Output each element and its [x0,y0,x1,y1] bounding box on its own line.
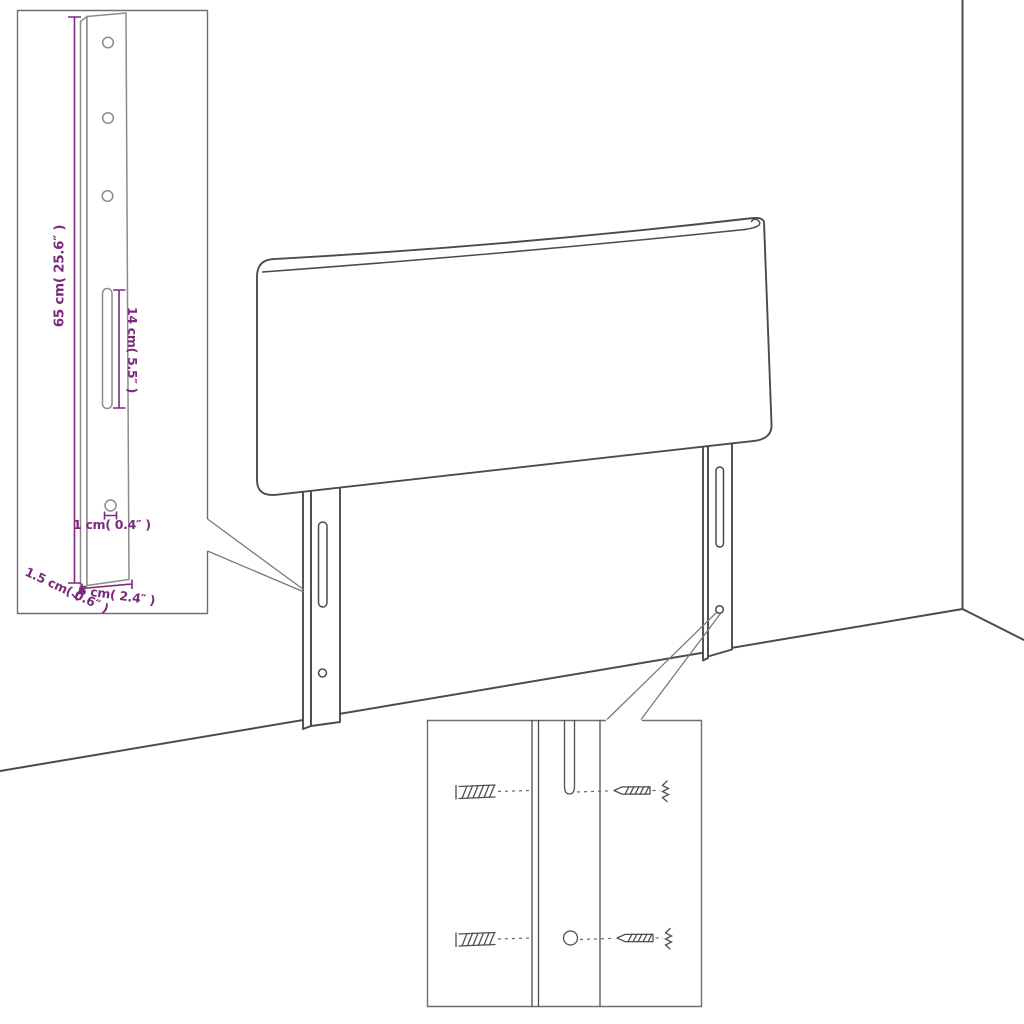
left-leg-front-face [311,478,340,726]
bracket-drawing [81,13,130,593]
headboard-right-leg [703,432,732,661]
leg-strip-slot [565,721,575,795]
dimension-hole-label: 1 cm( 0.4″ ) [73,517,151,532]
leg-strip-hole [564,931,578,945]
screw-break-squiggle [663,781,669,802]
leg-detail-callout-line-lower [208,551,305,592]
leg-detail-inset: 65 cm( 25.6″ ) 14 cm( 5.5″ ) 1 cm( 0.4″ … [18,11,208,616]
hardware-callout-line-right [641,614,721,720]
screw-leader-dashes [580,938,615,939]
screw-break-squiggle [666,929,672,950]
wall-plug-leader-dashes [498,938,530,939]
leg-strip-detail [532,721,600,1007]
screw-icon [577,781,669,802]
dimension-height-label: 65 cm( 25.6″ ) [52,225,68,328]
headboard-left-leg [303,478,340,729]
screw-icon [580,929,672,950]
wall-plug-icon [456,933,530,947]
bracket-side-face [81,17,88,593]
screw-leader-dashes [577,791,612,792]
floor-line-right [963,609,1024,640]
panel-outline [257,218,772,495]
right-leg-front-face [708,432,732,657]
wall-plug-icon [456,785,530,799]
left-leg-side-face [303,481,311,729]
hardware-detail-inset [428,721,702,1007]
diagram-stage: 65 cm( 25.6″ ) 14 cm( 5.5″ ) 1 cm( 0.4″ … [0,0,1024,1024]
floor-line-left [0,609,963,771]
leg-detail-callout-line-upper [208,519,304,590]
headboard-assembly-diagram: 65 cm( 25.6″ ) 14 cm( 5.5″ ) 1 cm( 0.4″ … [0,0,1024,1024]
wall-plug-leader-dashes [498,791,530,792]
dimension-height-line [68,17,81,583]
headboard-panel [257,218,772,495]
bracket-front-face [87,13,129,586]
dimension-slot-label: 14 cm( 5.5″ ) [125,307,140,393]
